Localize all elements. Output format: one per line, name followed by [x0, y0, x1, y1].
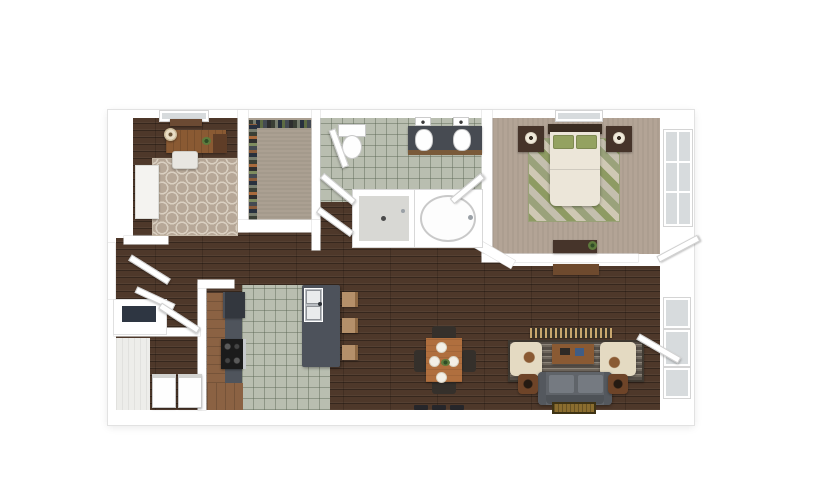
lamp-left [525, 132, 537, 144]
floor-vent-1 [414, 405, 428, 410]
dining-chair-right [462, 350, 476, 372]
island-faucet [318, 302, 322, 306]
floor-vent-2 [432, 405, 446, 410]
bar-stool-2 [342, 318, 358, 333]
coffee-table-book [575, 348, 584, 356]
island-sink-basin-bottom [306, 306, 321, 320]
dining-chair-bottom [432, 380, 456, 394]
laundry-floor [116, 338, 150, 410]
wall-bath-door-jamb [312, 220, 320, 250]
sofa-cushion-left [548, 374, 575, 394]
wall-kitchen-stub [198, 280, 234, 288]
hall-console-table [553, 264, 599, 275]
coffee-table [552, 344, 594, 364]
wall-entry-stub [124, 236, 168, 244]
bar-stool-1 [342, 292, 358, 307]
washer [152, 374, 176, 408]
bathtub-faucet [468, 215, 473, 220]
floor-plan [108, 110, 694, 425]
bedroom-right-window [664, 130, 692, 226]
refrigerator [223, 292, 245, 318]
plate-2 [430, 357, 439, 366]
den-bookcase [135, 165, 159, 219]
den-desk-return [213, 134, 227, 153]
dining-centerpiece [441, 359, 450, 366]
stove [221, 339, 243, 369]
wall-entry-recess [108, 243, 115, 299]
doormat [552, 402, 596, 414]
dresser-plant [588, 241, 597, 250]
stove-handle [243, 339, 246, 369]
armchair-right [600, 342, 636, 376]
floorplan-canvas [0, 0, 825, 500]
bed-pillow-right [576, 135, 597, 149]
dryer [178, 374, 202, 408]
vanity-faucet-left [416, 118, 430, 125]
bedroom-top-window [556, 111, 602, 121]
living-window-1 [664, 298, 690, 328]
walk-in-closet-floor [248, 118, 312, 222]
coat-closet-shelf [122, 306, 156, 322]
shower-drain [381, 216, 386, 221]
bed-pillow-left [553, 135, 574, 149]
coffee-table-tray [560, 348, 570, 355]
wall-closet-bottom [238, 220, 320, 232]
vanity-wood-edge [408, 150, 482, 155]
wall-bath-bedroom [482, 110, 492, 256]
closet-clothes-rack-top [249, 120, 311, 128]
media-console [530, 328, 612, 338]
wall-closet-bath [312, 110, 320, 234]
den-wall-shelf [170, 119, 202, 126]
lamp-right [613, 132, 625, 144]
wall-den-closet [238, 110, 248, 232]
sofa-armrest-left [538, 372, 546, 405]
den-desk-lamp [164, 128, 177, 141]
sofa-cushion-right [577, 374, 604, 394]
kitchen-cabinet-bottom [207, 383, 243, 410]
plate-1 [437, 343, 446, 352]
den-chair [172, 151, 198, 169]
bar-stool-3 [342, 345, 358, 360]
armchair-left [510, 342, 542, 376]
floor-vent-3 [450, 405, 464, 410]
vanity-faucet-right [454, 118, 468, 125]
den-plant [202, 137, 211, 145]
shower-head [401, 209, 405, 213]
vanity-sink-left [415, 129, 433, 151]
vanity-sink-right [453, 129, 471, 151]
closet-clothes-rack-left [249, 124, 257, 220]
den-rug [152, 158, 238, 236]
bedroom-door [656, 235, 700, 263]
plate-3 [449, 357, 458, 366]
plate-4 [437, 373, 446, 382]
living-window-3 [664, 368, 690, 398]
side-table-left [518, 374, 538, 394]
side-table-right [608, 374, 628, 394]
